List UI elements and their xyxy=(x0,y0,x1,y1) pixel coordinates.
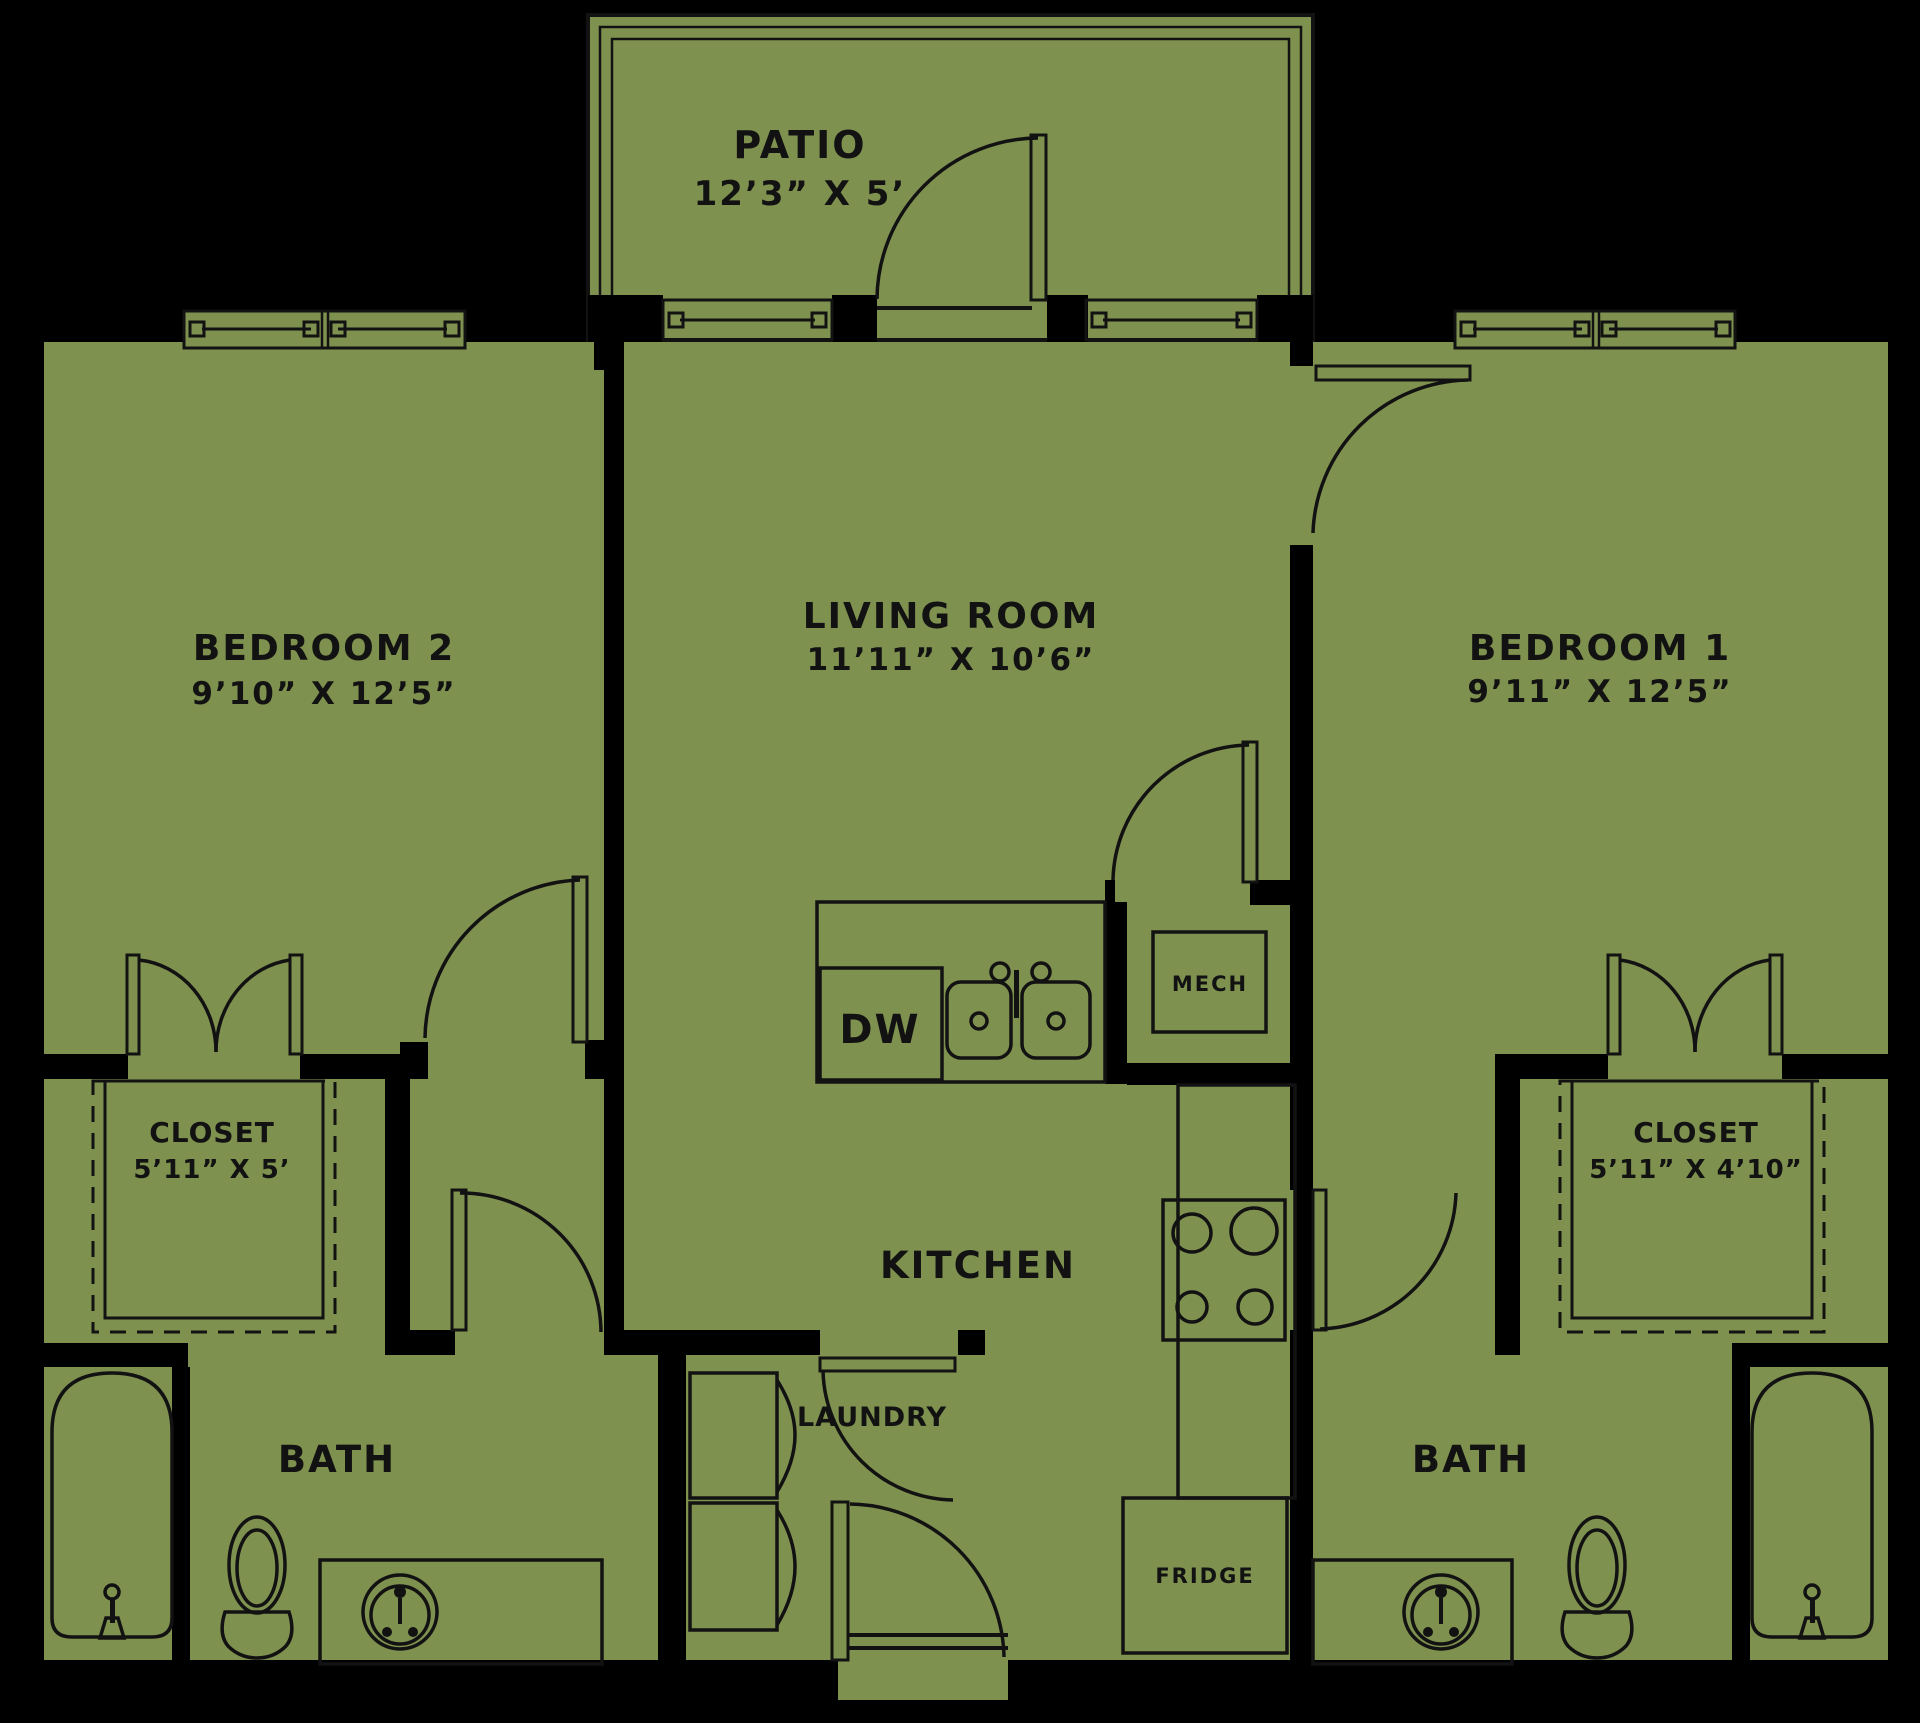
bedroom2-dims: 9’10” X 12’5” xyxy=(191,676,456,712)
bedroom2-label: BEDROOM 2 xyxy=(193,628,455,669)
mech-label: MECH xyxy=(1172,972,1248,996)
entry-threshold xyxy=(838,1660,1008,1700)
floor-plan: PATIO 12’3” X 5’ BEDROOM 2 9’10” X 12’5”… xyxy=(0,0,1920,1723)
kitchen-label: KITCHEN xyxy=(880,1244,1076,1287)
fridge-label: FRIDGE xyxy=(1155,1564,1254,1588)
floor-plan-svg: PATIO 12’3” X 5’ BEDROOM 2 9’10” X 12’5”… xyxy=(0,0,1920,1723)
living-room-label: LIVING ROOM xyxy=(803,596,1100,637)
bedroom1-dims: 9’11” X 12’5” xyxy=(1467,674,1732,710)
closet2-label: CLOSET xyxy=(149,1116,275,1149)
patio-label: PATIO xyxy=(733,123,866,167)
bath2-label: BATH xyxy=(278,1438,396,1481)
closet1-dims: 5’11” X 4’10” xyxy=(1589,1155,1803,1185)
bath1-label: BATH xyxy=(1412,1438,1530,1481)
patio-dims: 12’3” X 5’ xyxy=(694,174,907,214)
closet2-dims: 5’11” X 5’ xyxy=(133,1155,290,1185)
dishwasher-label: DW xyxy=(839,1007,920,1053)
bedroom1-label: BEDROOM 1 xyxy=(1469,628,1731,669)
closet1-label: CLOSET xyxy=(1633,1116,1759,1149)
laundry-label: LAUNDRY xyxy=(797,1402,947,1433)
living-room-dims: 11’11” X 10’6” xyxy=(807,642,1096,678)
